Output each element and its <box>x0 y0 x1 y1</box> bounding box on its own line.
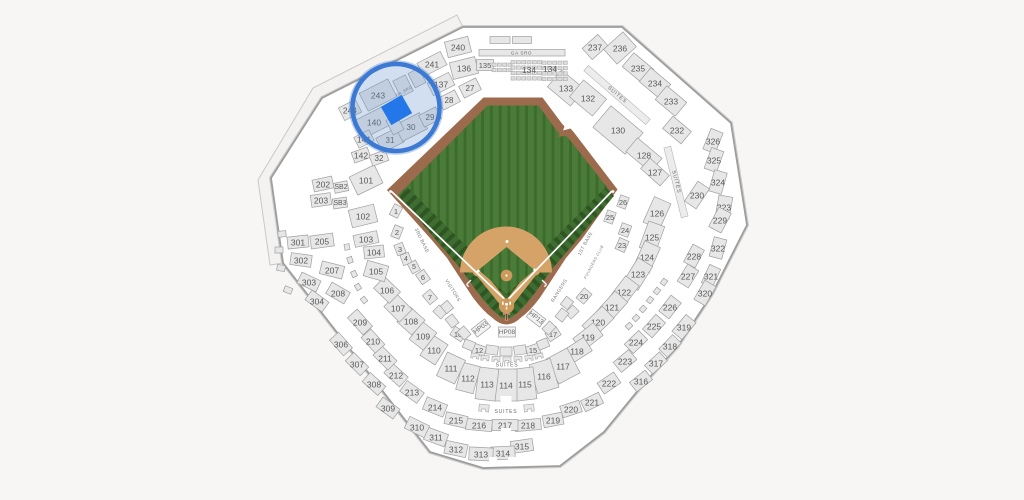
svg-text:135: 135 <box>479 61 492 70</box>
svg-text:28: 28 <box>445 96 454 105</box>
svg-text:310: 310 <box>410 423 424 433</box>
svg-text:24: 24 <box>621 226 629 235</box>
svg-text:207: 207 <box>325 266 339 276</box>
svg-text:227: 227 <box>681 272 695 282</box>
svg-text:229: 229 <box>713 216 727 226</box>
svg-text:205: 205 <box>315 237 329 247</box>
svg-text:T: T <box>503 312 510 324</box>
svg-text:6: 6 <box>421 273 425 282</box>
svg-text:7: 7 <box>428 293 432 302</box>
svg-text:216: 216 <box>472 421 486 431</box>
svg-text:222: 222 <box>602 379 616 389</box>
svg-text:142: 142 <box>354 151 368 161</box>
svg-text:322: 322 <box>711 244 725 254</box>
svg-text:304: 304 <box>310 297 324 307</box>
svg-text:134: 134 <box>522 65 536 75</box>
svg-text:HP08: HP08 <box>499 329 516 336</box>
svg-text:107: 107 <box>391 304 405 314</box>
svg-text:316: 316 <box>634 377 648 387</box>
svg-text:123: 123 <box>631 270 645 280</box>
svg-text:114: 114 <box>499 381 513 391</box>
svg-text:116: 116 <box>537 372 551 382</box>
svg-text:226: 226 <box>663 303 677 313</box>
svg-text:112: 112 <box>461 374 475 384</box>
svg-text:26: 26 <box>619 198 627 207</box>
svg-text:234: 234 <box>648 79 662 89</box>
svg-text:102: 102 <box>356 212 370 222</box>
svg-text:225: 225 <box>647 322 661 332</box>
svg-text:SB2: SB2 <box>334 184 347 191</box>
svg-text:208: 208 <box>331 289 345 299</box>
svg-text:134: 134 <box>543 64 557 74</box>
svg-text:320: 320 <box>698 289 712 299</box>
svg-text:237: 237 <box>588 43 602 53</box>
svg-text:23: 23 <box>618 241 626 250</box>
svg-text:SUITES: SUITES <box>496 363 519 369</box>
svg-text:228: 228 <box>687 252 701 262</box>
svg-text:SUITES: SUITES <box>495 409 518 415</box>
svg-text:117: 117 <box>556 362 570 372</box>
svg-text:32: 32 <box>375 154 384 163</box>
svg-text:224: 224 <box>629 338 643 348</box>
svg-text:108: 108 <box>404 317 418 327</box>
svg-text:233: 233 <box>664 97 678 107</box>
svg-text:308: 308 <box>367 380 381 390</box>
svg-text:315: 315 <box>515 442 529 452</box>
svg-text:15: 15 <box>529 346 537 355</box>
svg-text:318: 318 <box>663 342 677 352</box>
svg-text:203: 203 <box>314 196 328 206</box>
svg-text:1: 1 <box>394 207 398 216</box>
svg-text:209: 209 <box>353 318 367 328</box>
svg-text:326: 326 <box>706 137 720 147</box>
svg-text:105: 105 <box>369 267 383 277</box>
svg-text:213: 213 <box>405 388 419 398</box>
svg-text:223: 223 <box>618 357 632 367</box>
svg-text:25: 25 <box>606 213 614 222</box>
svg-text:GA SRO: GA SRO <box>511 51 532 56</box>
svg-text:104: 104 <box>367 248 381 258</box>
svg-text:202: 202 <box>316 180 330 190</box>
svg-text:309: 309 <box>381 404 395 414</box>
svg-text:312: 312 <box>449 445 463 455</box>
svg-text:311: 311 <box>429 433 443 443</box>
svg-text:3: 3 <box>398 245 402 254</box>
svg-text:118: 118 <box>570 347 584 357</box>
svg-text:325: 325 <box>707 156 721 166</box>
svg-text:236: 236 <box>613 44 627 54</box>
svg-text:27: 27 <box>466 84 475 93</box>
svg-text:306: 306 <box>334 340 348 350</box>
svg-text:214: 214 <box>428 403 442 413</box>
svg-text:212: 212 <box>389 371 403 381</box>
svg-text:232: 232 <box>670 126 684 136</box>
svg-text:SB3: SB3 <box>333 200 346 207</box>
svg-text:319: 319 <box>677 323 691 333</box>
svg-text:313: 313 <box>474 450 488 460</box>
svg-text:230: 230 <box>690 191 704 201</box>
svg-text:126: 126 <box>650 209 664 219</box>
svg-text:317: 317 <box>649 359 663 369</box>
svg-text:302: 302 <box>294 256 308 266</box>
svg-text:303: 303 <box>302 278 316 288</box>
svg-text:130: 130 <box>611 126 625 136</box>
svg-text:132: 132 <box>581 94 595 104</box>
svg-text:241: 241 <box>425 60 439 70</box>
svg-text:324: 324 <box>711 178 725 188</box>
svg-text:101: 101 <box>359 176 373 186</box>
svg-text:113: 113 <box>480 380 494 390</box>
svg-text:210: 210 <box>366 337 380 347</box>
svg-text:133: 133 <box>559 84 573 94</box>
svg-text:20: 20 <box>580 292 588 301</box>
svg-text:115: 115 <box>518 380 532 390</box>
svg-text:211: 211 <box>378 354 392 364</box>
svg-text:106: 106 <box>380 286 394 296</box>
svg-text:125: 125 <box>645 233 659 243</box>
svg-text:221: 221 <box>585 398 599 408</box>
svg-text:219: 219 <box>546 416 560 426</box>
svg-text:321: 321 <box>704 272 718 282</box>
svg-text:215: 215 <box>449 416 463 426</box>
svg-text:4: 4 <box>404 256 408 263</box>
svg-text:110: 110 <box>427 346 441 356</box>
svg-text:5: 5 <box>412 264 416 271</box>
svg-text:220: 220 <box>564 405 578 415</box>
svg-text:109: 109 <box>416 332 430 342</box>
svg-text:2: 2 <box>395 228 399 237</box>
svg-text:218: 218 <box>521 421 535 431</box>
svg-text:240: 240 <box>451 43 465 53</box>
svg-text:127: 127 <box>648 168 662 178</box>
svg-text:111: 111 <box>445 364 458 374</box>
svg-text:136: 136 <box>457 64 471 74</box>
svg-text:235: 235 <box>631 64 645 74</box>
svg-text:301: 301 <box>291 238 305 248</box>
svg-text:307: 307 <box>350 360 364 370</box>
svg-text:103: 103 <box>359 235 373 245</box>
